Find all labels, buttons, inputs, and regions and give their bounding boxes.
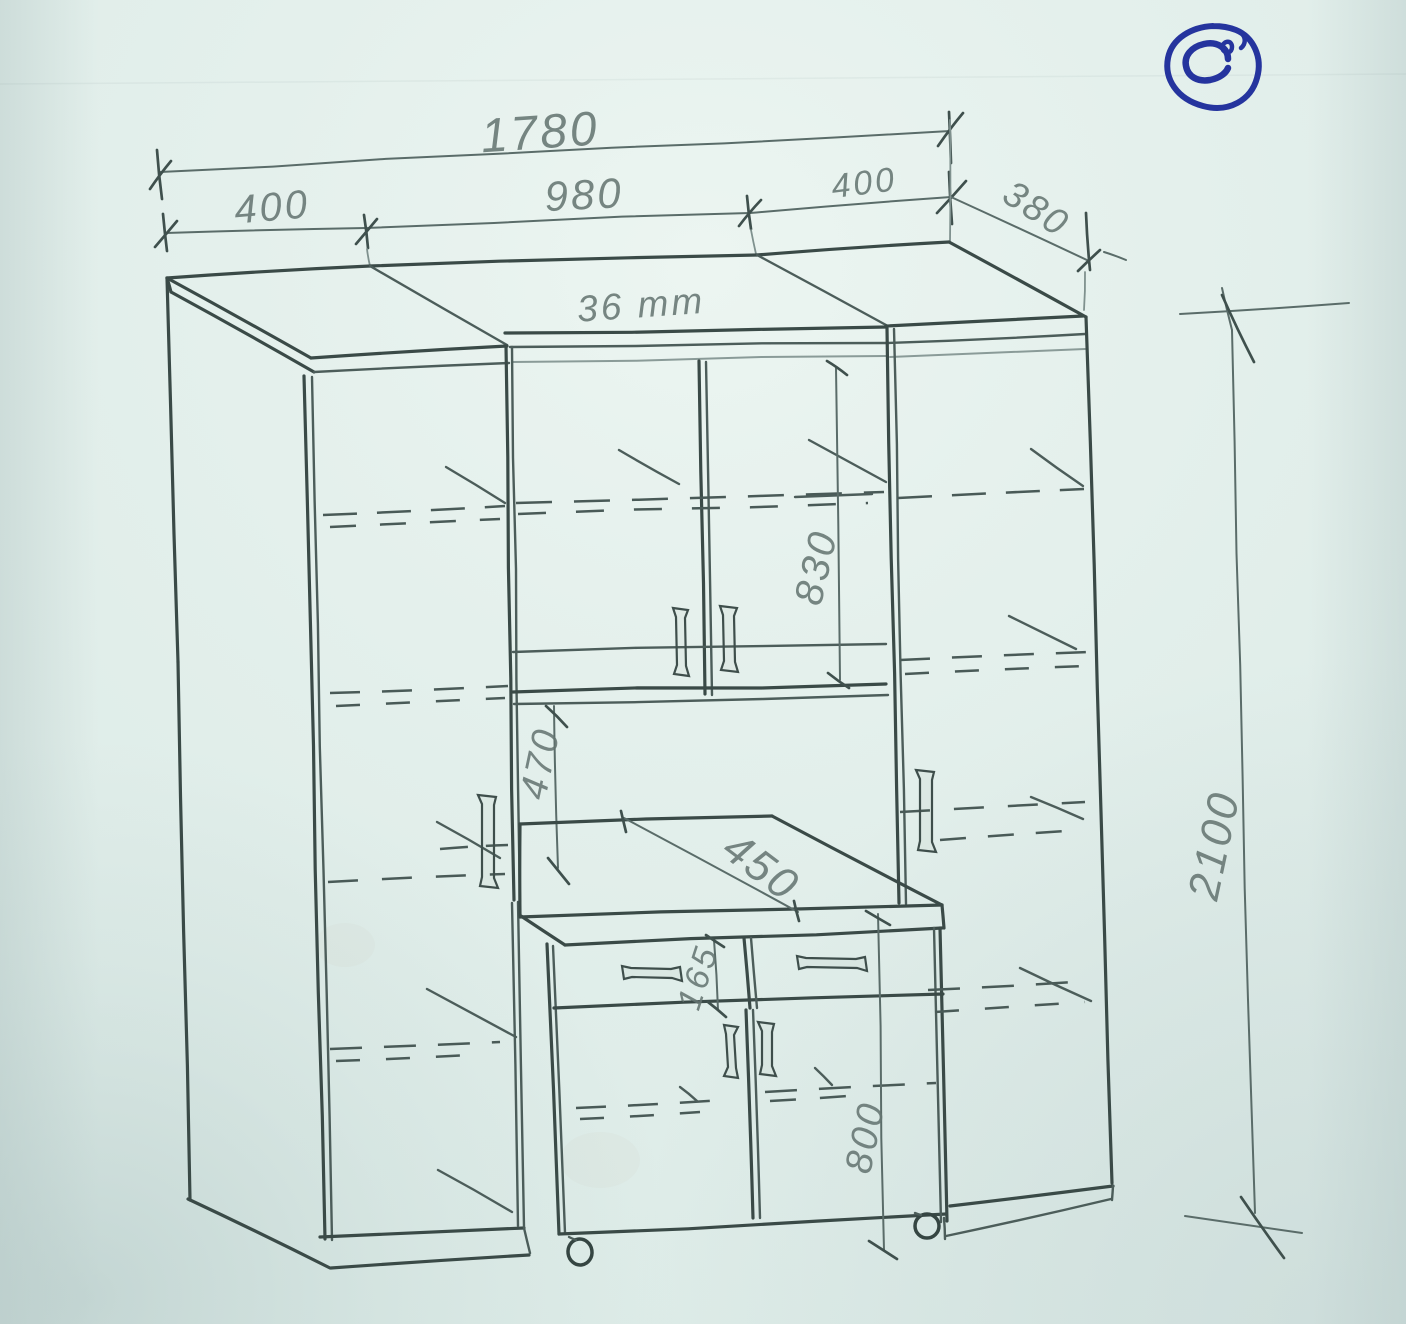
- svg-text:400: 400: [829, 160, 899, 206]
- svg-text:400: 400: [232, 182, 311, 232]
- svg-text:1780: 1780: [479, 102, 601, 163]
- svg-text:980: 980: [543, 169, 624, 220]
